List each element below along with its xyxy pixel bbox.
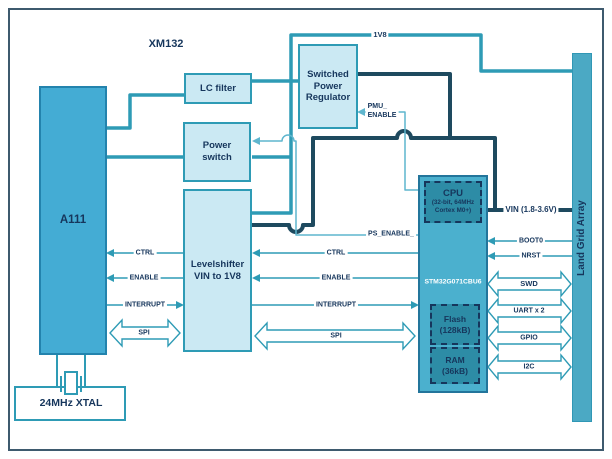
- signal-label-spi-mcu: SPI: [330, 331, 341, 340]
- net-label-vin: VIN (1.8-3.6V): [503, 205, 558, 215]
- diagram-page: A111 LC filter Power switch Switched Pow…: [0, 0, 612, 459]
- signal-label-boot0: BOOT0: [517, 236, 545, 245]
- bus-arrows: [110, 272, 571, 379]
- signal-label-uart: UART x 2: [513, 306, 544, 315]
- block-switched-power-regulator: Switched Power Regulator: [298, 44, 358, 129]
- signal-label-spi-a111: SPI: [138, 328, 149, 337]
- ps-arrowhead: [252, 137, 260, 145]
- cpu-subtitle: (32-bit, 64MHz Cortex M0+): [432, 199, 474, 215]
- block-land-grid-array: Land Grid Array: [572, 53, 592, 422]
- signal-label-i2c: I2C: [524, 362, 535, 371]
- wire-a111-lcfilter: [107, 95, 184, 128]
- block-cpu: CPU (32-bit, 64MHz Cortex M0+): [424, 181, 482, 223]
- net-label-pmu-enable: PMU_ ENABLE: [366, 102, 399, 120]
- xtal-label: 24MHz XTAL: [40, 397, 103, 411]
- signal-label-enable-mcu: ENABLE: [320, 273, 353, 282]
- block-levelshifter: Levelshifter VIN to 1V8: [183, 189, 252, 352]
- wire-pmu-enable: [362, 112, 418, 190]
- block-ram: RAM (36kB): [430, 347, 480, 384]
- mcu-part-label: STM32G071CBU6: [424, 279, 481, 288]
- signal-label-gpio: GPIO: [520, 333, 538, 342]
- block-flash: Flash (128kB): [430, 304, 480, 345]
- wire-ps-enable: [259, 135, 418, 235]
- block-a111: A111: [39, 86, 107, 355]
- signal-label-enable-a111: ENABLE: [128, 273, 161, 282]
- signal-label-interrupt-a111: INTERRUPT: [123, 300, 167, 309]
- crystal-icon: [57, 355, 85, 394]
- cpu-title: CPU: [443, 189, 463, 199]
- block-power-switch: Power switch: [183, 122, 251, 182]
- net-label-ps-enable: PS_ENABLE_: [366, 229, 416, 238]
- signal-label-ctrl-mcu: CTRL: [325, 248, 348, 257]
- thin-wires: [259, 112, 418, 235]
- signal-label-nrst: NRST: [519, 251, 542, 260]
- block-lc-filter: LC filter: [184, 73, 252, 104]
- net-label-1v8: 1V8: [371, 30, 388, 40]
- signal-label-swd: SWD: [520, 279, 538, 289]
- signal-label-interrupt-mcu: INTERRUPT: [314, 300, 358, 309]
- diagram-title: XM132: [149, 37, 184, 51]
- signal-label-ctrl-a111: CTRL: [134, 248, 157, 257]
- pmu-arrowhead: [357, 108, 365, 116]
- lga-label: Land Grid Array: [576, 200, 589, 276]
